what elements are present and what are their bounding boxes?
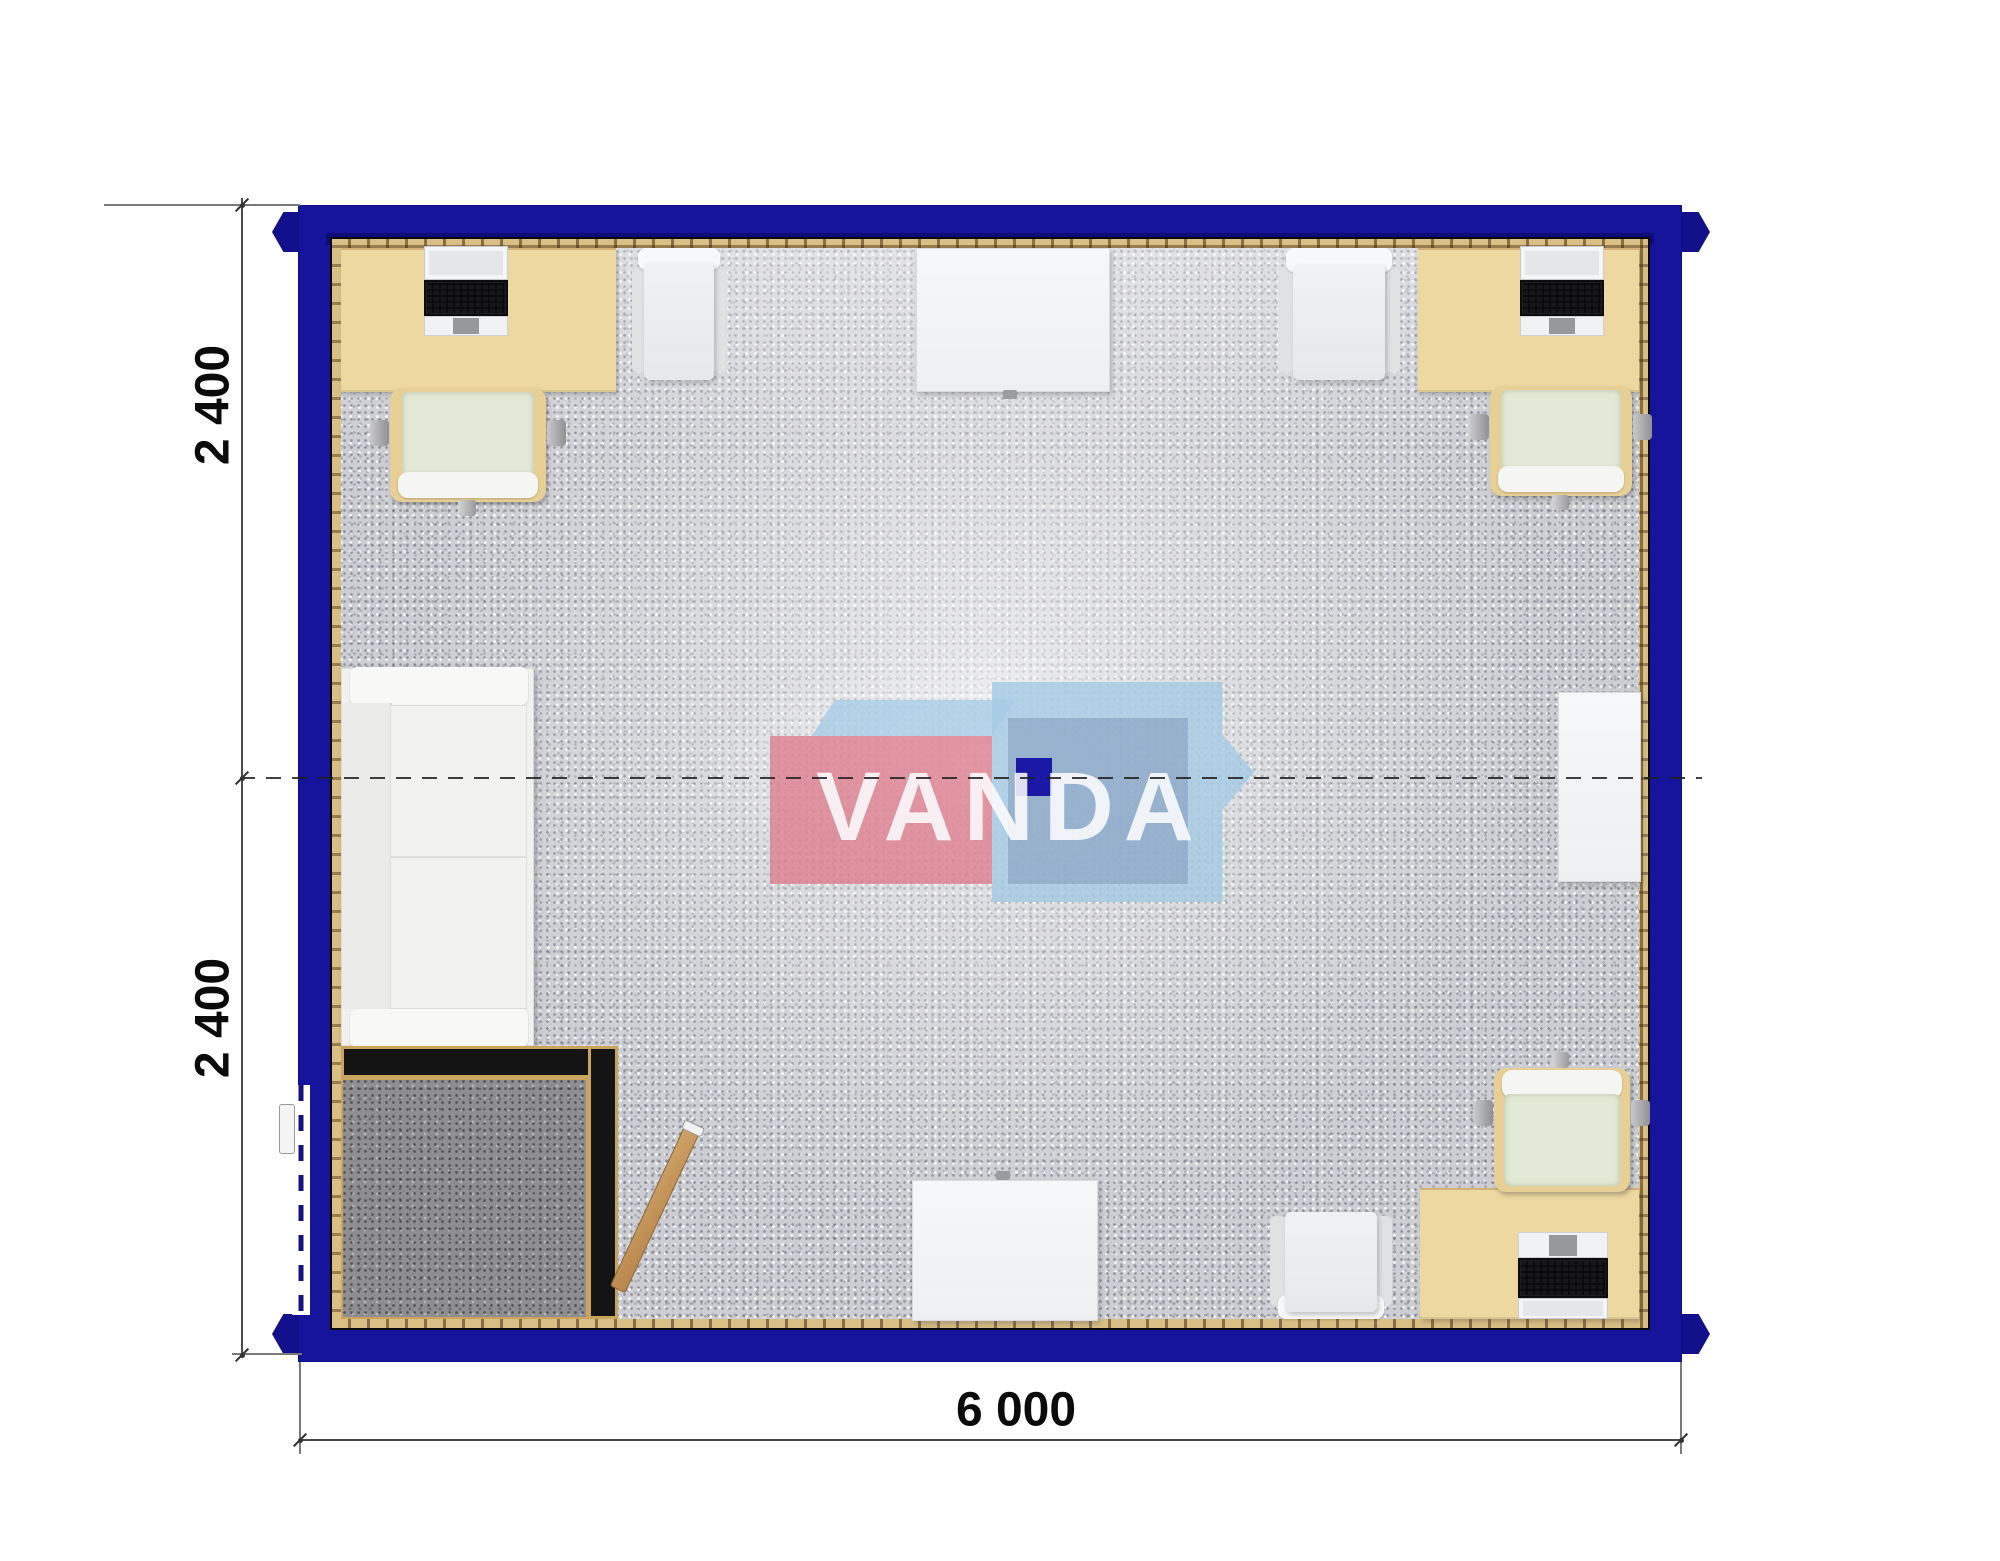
watermark-box-top-face xyxy=(812,700,1014,736)
laptop-bottom-right xyxy=(1518,1232,1608,1319)
visitor-chair-top-left xyxy=(632,248,726,382)
extension-line-top xyxy=(104,204,300,206)
door-swing-dashes xyxy=(299,1085,304,1315)
partition-wall-horizontal xyxy=(341,1046,618,1078)
dimension-line-bottom xyxy=(300,1439,1682,1441)
armrest-left xyxy=(370,420,389,446)
armrest-right xyxy=(547,420,566,446)
corner-casting-bottom-right xyxy=(1680,1314,1710,1354)
table-leg-bottom xyxy=(996,1171,1010,1180)
meeting-table-top xyxy=(916,248,1110,392)
dim-tick-dot xyxy=(240,203,245,208)
meeting-table-bottom xyxy=(912,1180,1098,1321)
floor-plan-canvas: VANDA 2 400 2 400 6 000 xyxy=(0,0,2000,1561)
dim-tick-dot xyxy=(240,1353,245,1358)
laptop-screen xyxy=(424,246,508,280)
watermark-logo-text: VANDA xyxy=(790,742,1230,872)
entry-vestibule-mat xyxy=(341,1078,588,1319)
exterior-door-handle xyxy=(279,1104,295,1154)
office-chair-top-right xyxy=(1490,386,1632,496)
visitor-chair-top-right xyxy=(1278,248,1400,382)
table-leg-top xyxy=(1003,390,1017,399)
office-chair-bottom-right xyxy=(1494,1068,1630,1192)
sofa-cushion-lower xyxy=(390,857,527,1009)
dim-tick-dot xyxy=(240,776,245,781)
corner-casting-top-right xyxy=(1680,212,1710,252)
sofa-cushion-upper xyxy=(390,705,527,857)
laptop-keyboard xyxy=(424,280,508,316)
side-table-right-wall xyxy=(1558,692,1641,882)
laptop-top-right xyxy=(1520,246,1604,336)
module-joint-centerline xyxy=(240,777,1702,779)
sofa-backrest xyxy=(342,703,392,1009)
sofa xyxy=(341,668,534,1046)
dimension-label-left-top: 2 400 xyxy=(186,345,241,465)
sofa-armrest-bottom xyxy=(350,1009,528,1047)
visitor-chair-bottom xyxy=(1270,1212,1392,1319)
laptop-top-left xyxy=(424,246,508,336)
dimension-label-bottom: 6 000 xyxy=(956,1383,1076,1438)
chair-stem xyxy=(458,500,476,516)
laptop-touchpad xyxy=(453,318,479,334)
dim-tick-dot xyxy=(298,1438,303,1443)
dim-tick-dot xyxy=(1679,1438,1684,1443)
dimension-label-left-bottom: 2 400 xyxy=(186,958,241,1078)
office-chair-top-left xyxy=(390,388,546,502)
sofa-armrest-top xyxy=(350,667,528,705)
